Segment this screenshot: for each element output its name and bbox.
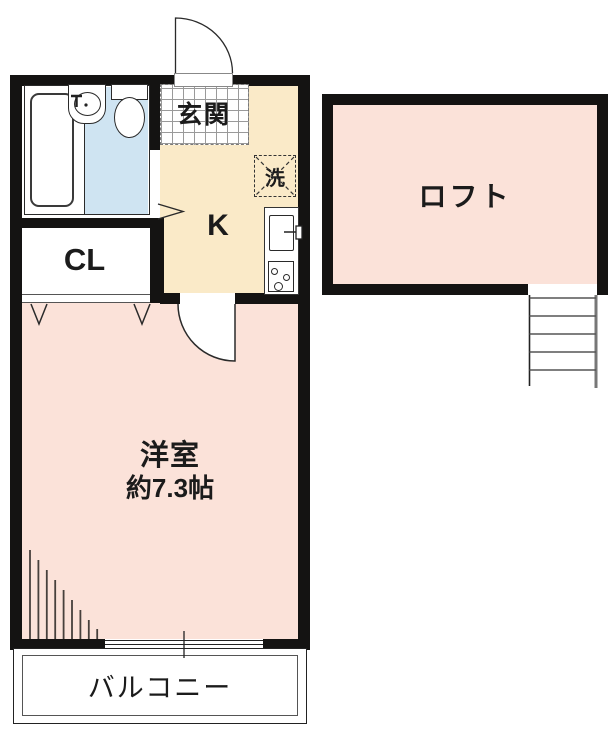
- wall-kitchen-bottom-left: [160, 293, 180, 304]
- closet-label: CL: [27, 241, 142, 278]
- wall-right: [298, 75, 310, 650]
- loft-ladder-opening: [528, 284, 597, 295]
- toilet-bowl-icon: [114, 97, 145, 138]
- stove-burner-icon: [274, 282, 283, 291]
- closet-door-track: [22, 294, 150, 303]
- stove-burner-icon: [271, 268, 278, 275]
- room-label: 洋室: [75, 438, 265, 468]
- wall-bath-bottom: [10, 218, 164, 228]
- ladder-icon: [530, 295, 597, 388]
- kitchen-label: K: [196, 209, 240, 243]
- stove-burner-icon: [283, 274, 290, 281]
- wall-left: [10, 75, 22, 650]
- entrance-door-leaf: [174, 73, 233, 87]
- room-door-opening: [180, 293, 235, 304]
- balcony-label: バルコニー: [22, 655, 298, 716]
- window-mid-line: [105, 644, 263, 645]
- wall-closet-right: [150, 218, 164, 303]
- floorplan-canvas: 玄関 洗 K CL 洋室 約7.3帖 バルコニー ロフト: [0, 0, 615, 736]
- washer-label: 洗: [254, 155, 296, 197]
- loft-label: ロフト: [333, 105, 597, 284]
- kitchen-sink-icon: [269, 215, 294, 251]
- entrance-door-arc-icon: [176, 18, 233, 73]
- bath-sink-basin-icon: [74, 92, 101, 116]
- room-size-label: 約7.3帖: [75, 471, 265, 501]
- entrance-label: 玄関: [158, 99, 250, 127]
